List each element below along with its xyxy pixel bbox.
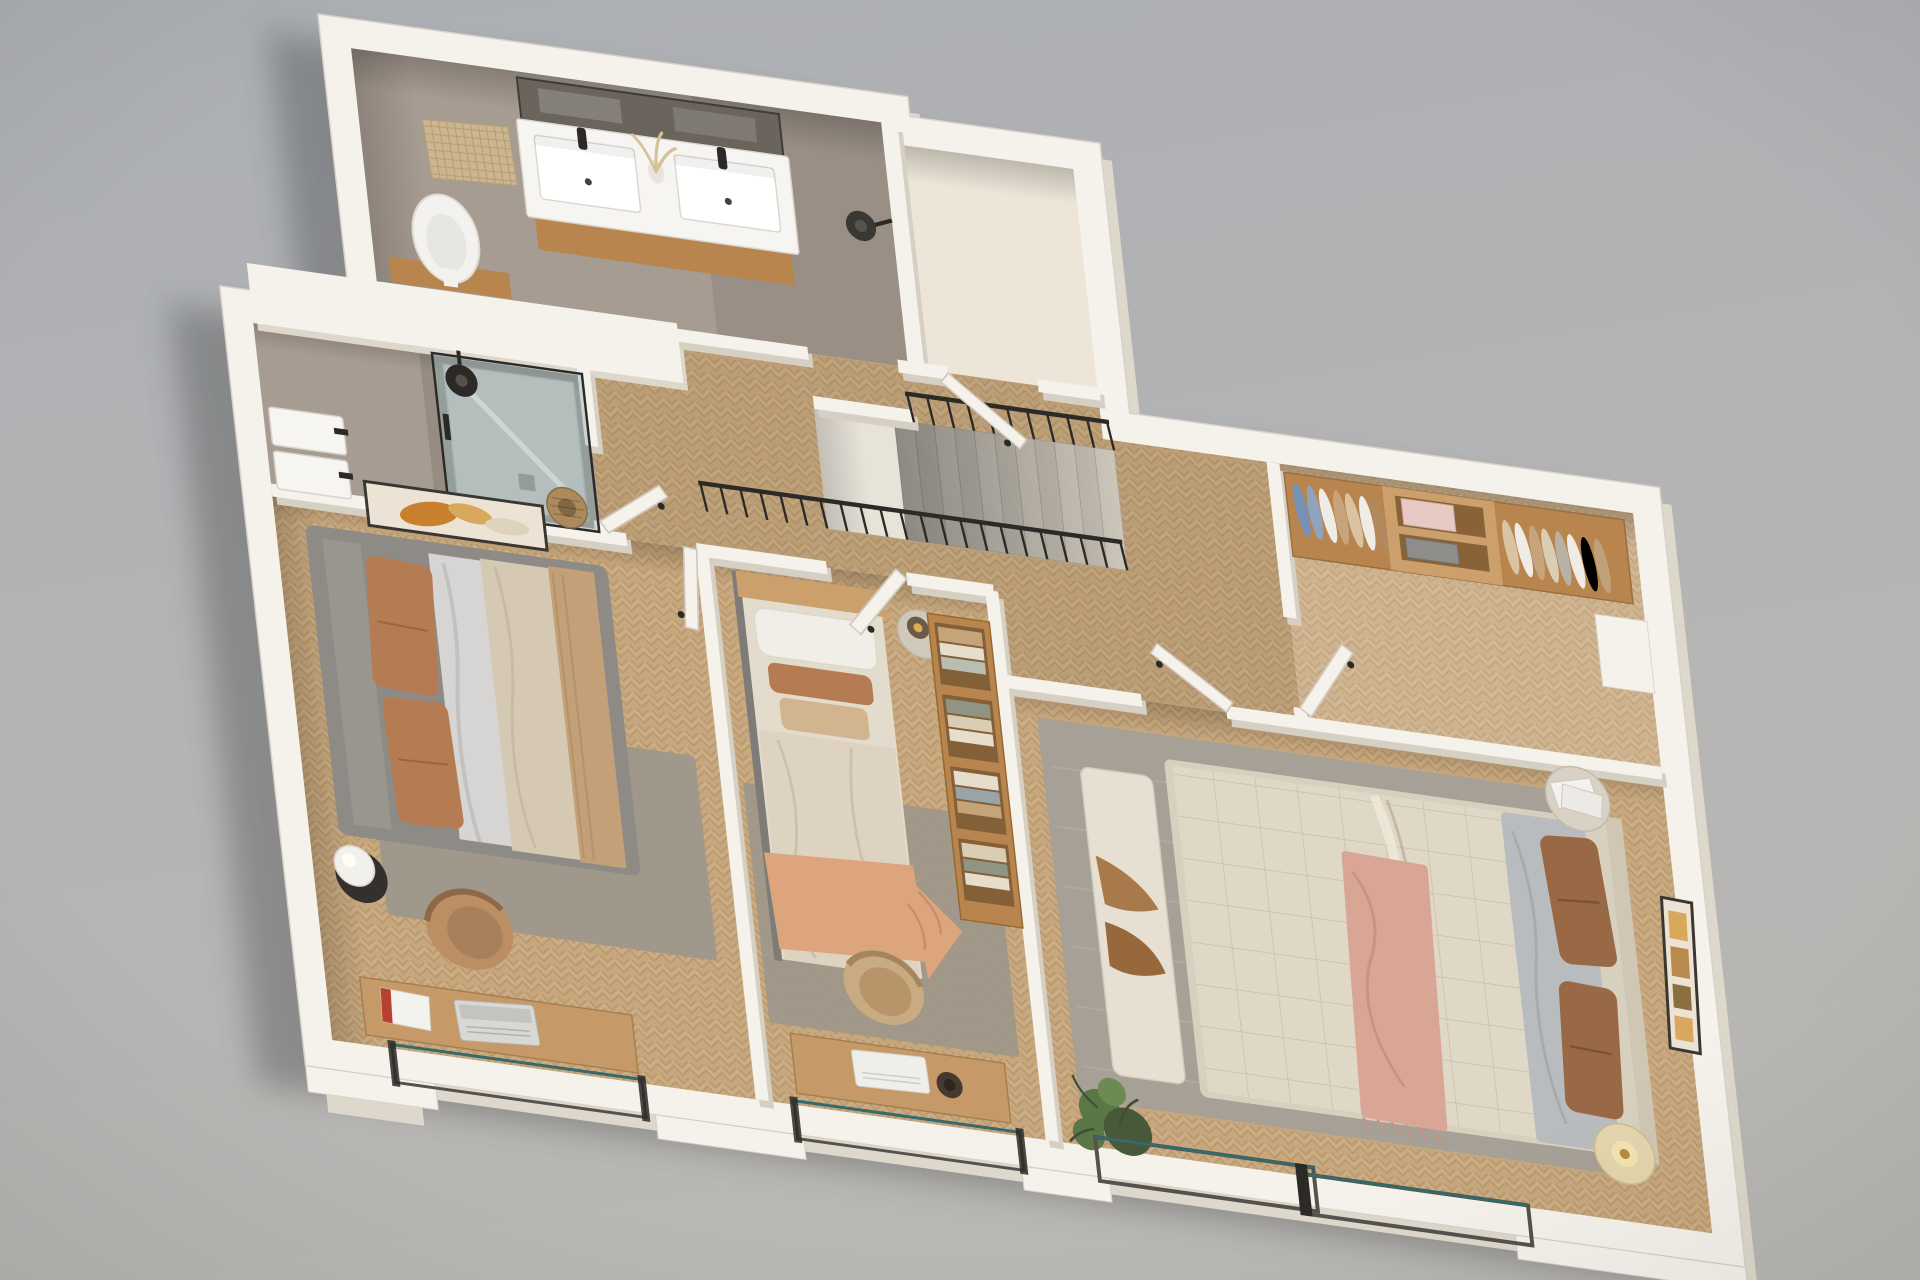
laptop [454, 1000, 540, 1046]
woven-bath-mat [422, 120, 517, 186]
floorplan-render [0, 0, 1920, 1280]
white-laptop [851, 1050, 930, 1094]
bedroom-left-bed [305, 524, 641, 876]
room-wc [903, 145, 1098, 394]
